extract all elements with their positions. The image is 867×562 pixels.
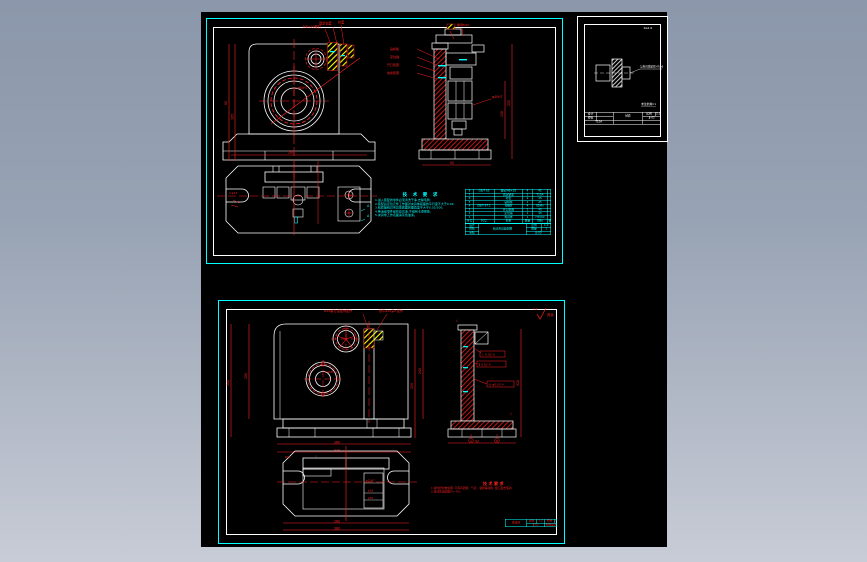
callout-spotface: 锪平φ24深2 配作 <box>379 308 403 313</box>
finish-mark-3: √ <box>315 454 317 458</box>
corner-value: 3.2 <box>533 307 538 311</box>
dim-side-height: 255 <box>507 100 511 106</box>
detail-title-block: 设计 钻套 比例 2:1 校核JJ-02 T10A <box>584 112 661 136</box>
note-line: 5.夹具非工作表面涂灰色油漆。 <box>375 214 467 218</box>
sheet1-title-block: 设计 钻床夹具装配图 比例 1:2 校核数量1 审核JJ-00 <box>465 223 551 235</box>
dim-slot-holes: 2-φ13 <box>229 191 237 195</box>
bom-row: 4GB/T 97.1垫圈8465Mn <box>465 204 551 208</box>
dim-hole2: φ18 <box>368 489 373 493</box>
detail-callout: 与夹具体配作H7/n6 <box>640 65 664 69</box>
note-line: 2.未注铸造圆角R3~R5。 <box>431 491 557 495</box>
dim-radius: R15 <box>285 455 291 459</box>
dim-bore: φ62H7 <box>297 86 308 90</box>
section-mark-a1: A <box>367 204 370 208</box>
sheet2-notes: 技术要求 1.铸件经时效处理, 不得有砂眼、气孔、裂纹等缺陷, 加工面去毛刺; … <box>431 481 557 507</box>
sheet1-notes: 技 术 要 求 1.进入装配的零件必须清洗干净,去除毛刺; 2.装配后定位元件工… <box>375 191 467 249</box>
dim-bore2: φ40H7 <box>325 370 335 374</box>
callout-bushing: 固定钻套 <box>319 21 333 26</box>
dim-base2: 320 <box>334 448 340 452</box>
sheet2-body-drawing: M12螺孔 装配时配作 锪平φ24深2 配作 260 320 240 200 2… <box>218 300 565 544</box>
dim-hole1: φ12H7 <box>366 479 375 483</box>
dim-hole3: φ30 <box>368 496 373 500</box>
callout-liner: 衬套 <box>338 20 345 25</box>
dim-total-height: 105 <box>231 114 235 120</box>
bom-row: 8GB/T 65螺钉M8×25445 <box>465 189 551 193</box>
sheet1-side-view: 钻模板 定位轴 开口垫圈 快换垫圈 螺母M10 255 118 92 φ40H7 <box>387 22 512 165</box>
datum-b: B <box>496 439 498 443</box>
dim-bv1: 260 <box>334 519 340 523</box>
dim-side-h2: 320 <box>516 380 520 386</box>
sheet1-front-view: 260 80 105 φ62H7 M8×20螺钉 固定钻套 衬套 <box>223 20 375 180</box>
callout-thread: M12螺孔 装配时配作 <box>324 308 352 313</box>
finish-mark-2: √ <box>510 412 513 416</box>
part-name: 夹具体 <box>505 519 527 527</box>
dim-side-bore: φ40H7 <box>492 95 503 99</box>
gdt-concentricity: ◎ φ0.03 A <box>489 383 505 387</box>
dim-left2: 200 <box>244 373 248 379</box>
callout-axis: 定位轴 <box>390 54 399 59</box>
detail-sheet: 与夹具体配作H7/n6 Ra1.6 未注倒角C1 设计 钻套 比例 2:1 校核… <box>577 16 668 142</box>
finish-mark-1: √ <box>456 319 459 323</box>
sheet1-parts-list: 8GB/T 65螺钉M8×25445 7固定钻套2T10A 6衬套245 5钻模… <box>465 189 551 256</box>
dim-base-width: 260 <box>288 151 294 155</box>
roughness-mark: Ra1.6 <box>644 26 653 30</box>
dim-left1: 240 <box>226 380 230 386</box>
dim-side-mid: 118 <box>500 111 504 117</box>
sheet2-title-block: 夹具体 比例 1:2 材料 HT200 JJ-01 机械设计课程设计 <box>505 519 557 535</box>
sheet2-front-view: M12螺孔 装配时配作 锪平φ24深2 配作 260 320 240 200 2… <box>226 308 423 452</box>
dim-side-base: 92 <box>450 161 454 165</box>
notes-title: 技 术 要 求 <box>375 191 467 198</box>
drawing-canvas[interactable]: 260 80 105 φ62H7 M8×20螺钉 固定钻套 衬套 <box>201 12 667 547</box>
callout-washer: 快换垫圈 <box>387 70 399 75</box>
dim-mid1: 255 <box>410 383 414 389</box>
detail-part-view <box>594 59 662 87</box>
notes2-title: 技术要求 <box>431 481 557 487</box>
sheet1-assembly-drawing: 260 80 105 φ62H7 M8×20螺钉 固定钻套 衬套 <box>206 18 563 264</box>
sheet2-corner-finish: 其余 3.2 <box>533 307 554 319</box>
drawing-title: 钻床夹具装配图 <box>479 224 527 235</box>
sheet1-bottom-view: 2-φ13 A A <box>217 161 377 235</box>
corner-label: 其余 <box>547 312 554 317</box>
dim-mid2: 240 <box>418 368 422 374</box>
sheet2-side-view: ⊥ 0.02 A ∥ 0.02 A ◎ φ0.03 A A B 92 320 √… <box>448 319 521 443</box>
dim-base1: 260 <box>334 440 340 444</box>
cad-viewer: { "viewer": { "background_top": "#8b97aa… <box>0 0 867 562</box>
dim-body-height: 80 <box>224 101 228 105</box>
dim-bv2: 380 <box>334 526 340 530</box>
dim-side-base2: 92 <box>475 439 479 443</box>
detail-note: 未注倒角C1 <box>641 102 656 106</box>
datum-a: A <box>470 439 472 443</box>
gdt-perpendicularity: ⊥ 0.02 A <box>482 353 496 357</box>
callout-nut: 螺母M10 <box>457 22 469 27</box>
callout-open-washer: 开口垫圈 <box>387 62 399 67</box>
section-mark-a2: A <box>367 214 370 218</box>
gdt-parallelism: ∥ 0.02 A <box>479 363 492 367</box>
callout-plate: 钻模板 <box>390 46 399 51</box>
sheet2-bottom-view: φ12H7 φ18 φ30 R15 √ 260 380 <box>277 446 417 530</box>
detail-part-name: 钻套 <box>613 112 643 120</box>
